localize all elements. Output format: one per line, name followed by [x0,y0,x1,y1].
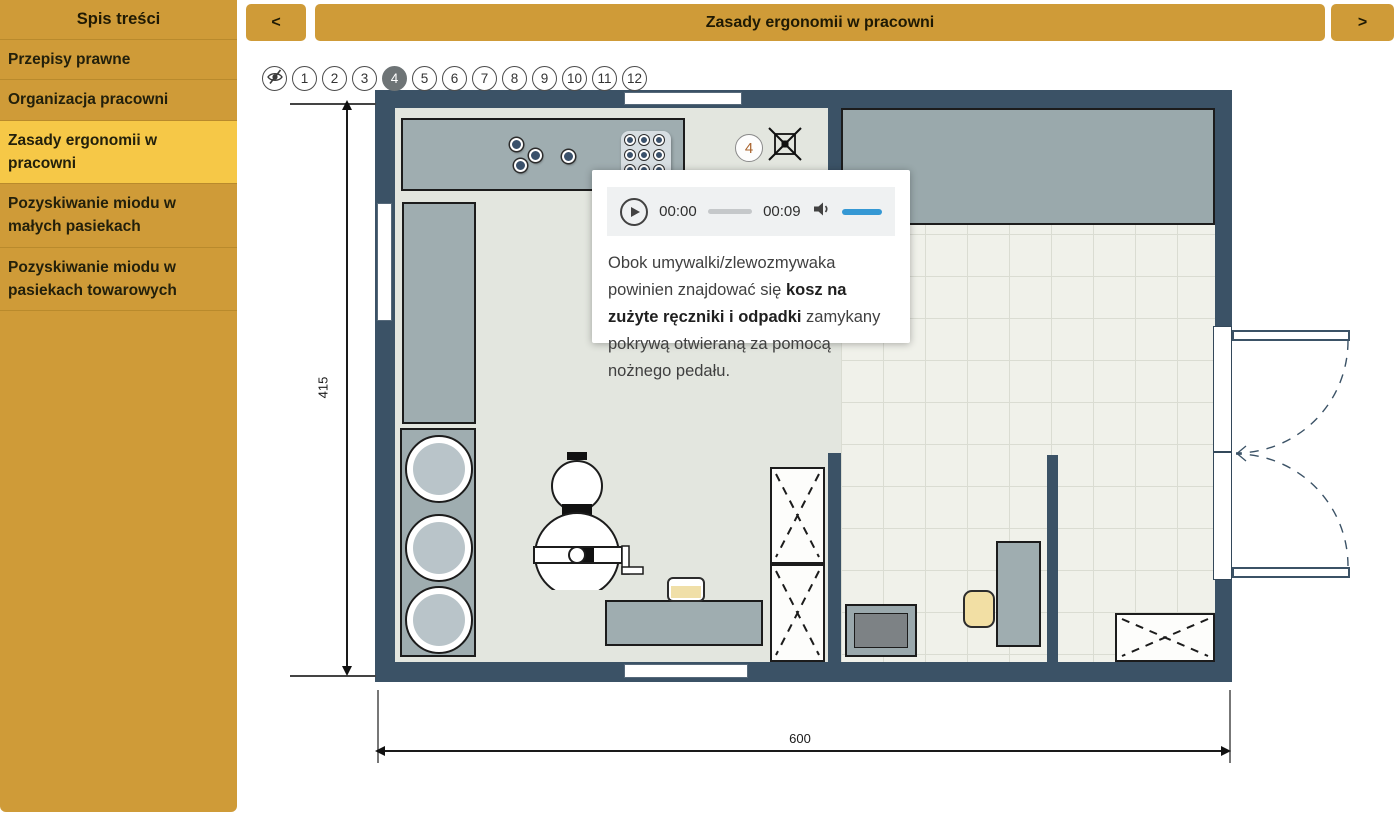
play-button[interactable] [620,198,648,226]
sidebar-item-przepisy-prawne[interactable]: Przepisy prawne [0,40,237,80]
knob-dot [514,159,527,172]
door-swing-arcs [1230,336,1365,576]
window-bottom [624,664,748,678]
work-table [605,600,763,646]
speaker-icon[interactable] [812,201,831,222]
width-dimension-line [378,750,1229,752]
sidebar-item-pozyskiwanie-towarowe[interactable]: Pozyskiwanie miodu w pasiekach towarowyc… [0,248,237,312]
marker-4[interactable]: 4 [735,134,763,162]
pallet-inner [854,613,908,648]
marker-popup: 00:00 00:09 Obok umywalki/zlewozmywaka p… [592,170,910,343]
window-left [377,203,392,321]
sidebar-item-organizacja-pracowni[interactable]: Organizacja pracowni [0,80,237,120]
popup-text: Obok umywalki/zlewozmywaka powinien znaj… [608,250,896,385]
eye-off-icon [266,68,284,89]
crossed-bin-icon[interactable] [767,126,803,162]
hide-markers-button[interactable] [262,66,287,91]
page-title: Zasady ergonomii w pracowni [315,4,1325,41]
page: Spis treści Przepisy prawne Organizacja … [0,0,1399,816]
height-dimension-line [346,104,348,674]
prev-page-button[interactable]: < [246,4,306,41]
crate-table-2 [770,564,825,662]
crate-table-1 [770,467,825,564]
dim-arrow [342,666,352,676]
desk [996,541,1041,647]
stool [963,590,995,628]
step-button-12[interactable]: 12 [622,66,647,91]
height-dimension-label: 415 [315,377,330,399]
knob-dot [529,149,542,162]
middle-wall-bottom [828,453,841,662]
knob-dot [562,150,575,163]
tank [405,435,473,503]
duration: 00:09 [763,203,801,220]
current-time: 00:00 [659,203,697,220]
progress-bar[interactable] [708,209,752,214]
step-button-4[interactable]: 4 [382,66,407,91]
step-button-9[interactable]: 9 [532,66,557,91]
sidebar-item-pozyskiwanie-male[interactable]: Pozyskiwanie miodu w małych pasiekach [0,184,237,248]
step-button-7[interactable]: 7 [472,66,497,91]
honey-container [667,577,705,602]
dim-tick [290,103,376,105]
knob-dot [510,138,523,151]
play-icon [631,207,640,217]
dim-arrow [1221,746,1231,756]
sidebar-toc: Spis treści Przepisy prawne Organizacja … [0,0,237,812]
cabinet [402,202,476,424]
volume-bar[interactable] [842,209,882,215]
honey-extractor [525,448,650,590]
dim-tick [290,675,376,677]
dim-arrow [342,100,352,110]
step-button-8[interactable]: 8 [502,66,527,91]
width-dimension-label: 600 [760,731,840,746]
dim-arrow [375,746,385,756]
audio-player: 00:00 00:09 [607,187,895,236]
step-button-5[interactable]: 5 [412,66,437,91]
step-button-2[interactable]: 2 [322,66,347,91]
pallet [845,604,917,657]
tank [405,586,473,654]
window-top [624,92,742,105]
next-page-button[interactable]: > [1331,4,1394,41]
partition-wall [1047,455,1058,662]
sidebar-item-zasady-ergonomii[interactable]: Zasady ergonomii w pracowni [0,121,237,185]
marker-stepper: 1 2 3 4 5 6 7 8 9 10 11 12 [262,66,647,91]
step-button-11[interactable]: 11 [592,66,617,91]
step-button-10[interactable]: 10 [562,66,587,91]
step-button-3[interactable]: 3 [352,66,377,91]
step-button-1[interactable]: 1 [292,66,317,91]
crate-table-3 [1115,613,1215,662]
step-button-6[interactable]: 6 [442,66,467,91]
tank [405,514,473,582]
tank-unit [400,428,476,657]
sidebar-title: Spis treści [0,0,237,40]
